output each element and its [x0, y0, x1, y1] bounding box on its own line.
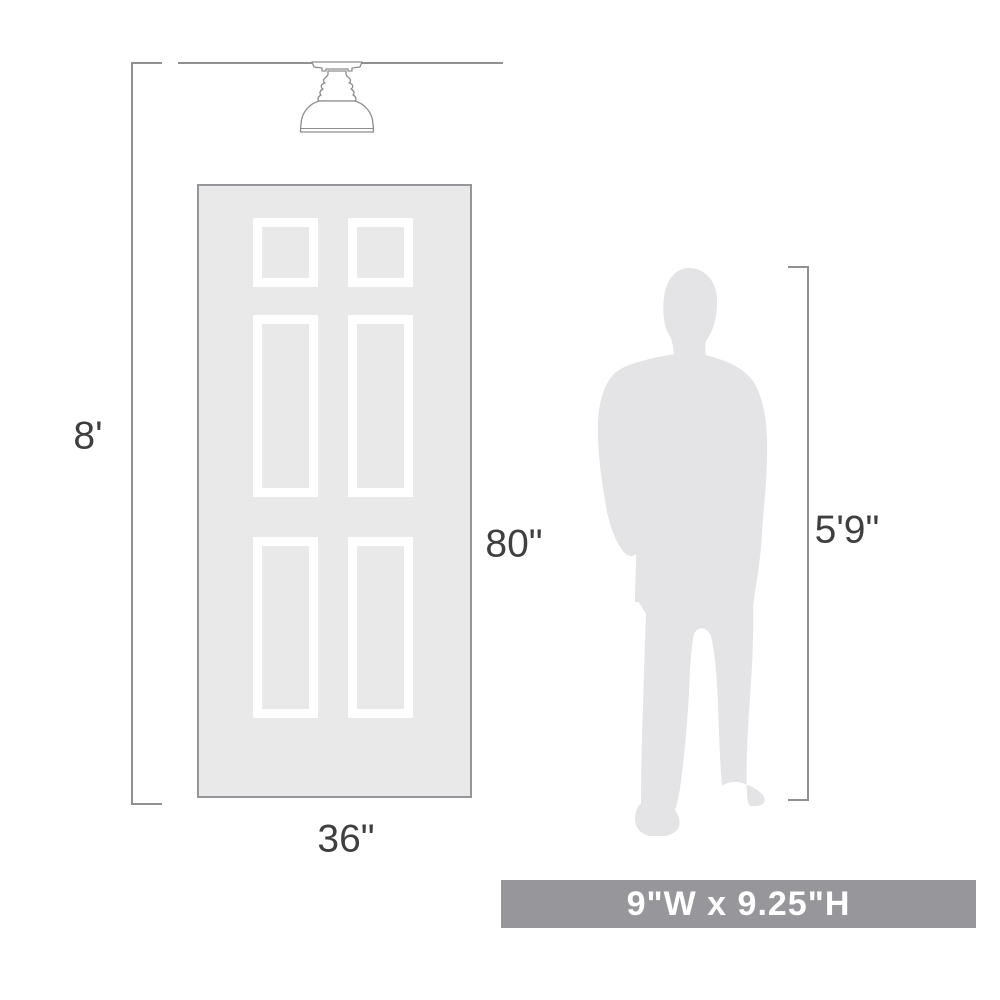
person-height-dimension-line — [788, 266, 809, 801]
ceiling-height-label: 8' — [73, 417, 102, 456]
door-height-label: 80" — [485, 525, 542, 564]
door-panel — [253, 218, 318, 287]
ceiling-height-dimension-line — [131, 62, 162, 805]
door-panel — [348, 218, 413, 287]
fixture-canopy — [312, 62, 362, 71]
door-width-label: 36" — [317, 820, 374, 859]
fixture-shade — [301, 101, 374, 132]
door-panel — [348, 315, 413, 497]
silhouette-legs — [635, 596, 765, 836]
door-panel — [253, 315, 318, 497]
six-panel-door-graphic — [197, 184, 472, 798]
product-size-banner: 9"W x 9.25"H — [501, 880, 976, 928]
man-silhouette-icon — [590, 266, 770, 836]
silhouette-torso — [598, 354, 767, 607]
product-size-text: 9"W x 9.25"H — [627, 885, 851, 924]
door-panel — [253, 537, 318, 718]
door-panel — [348, 537, 413, 718]
ceiling-light-icon — [292, 58, 382, 136]
fixture-neck — [318, 71, 356, 101]
silhouette-head — [663, 268, 717, 360]
scale-diagram: 8' 80" 36" 5'9" 9"W x 9.25"H — [0, 0, 1000, 1000]
person-height-label: 5'9" — [815, 511, 880, 550]
